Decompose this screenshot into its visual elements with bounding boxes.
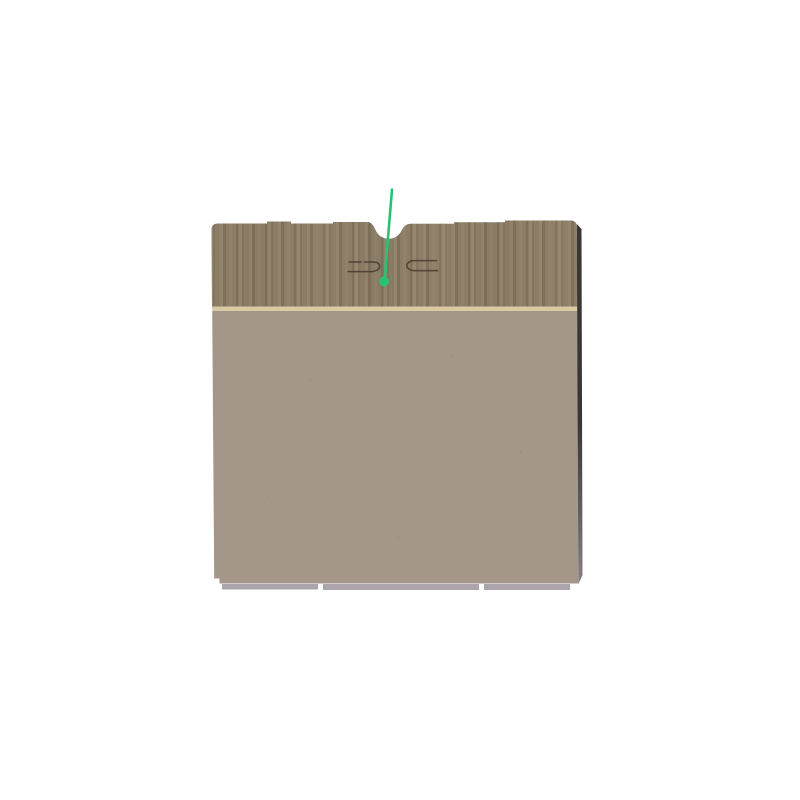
pointer-dot xyxy=(379,277,389,287)
box-lid-flap-tone-bands xyxy=(212,221,578,307)
box-fold-edge xyxy=(212,307,577,312)
scene xyxy=(0,0,800,800)
box-bottom-edge xyxy=(222,584,570,590)
box-front-panel xyxy=(212,311,578,584)
box-photo xyxy=(0,0,800,800)
